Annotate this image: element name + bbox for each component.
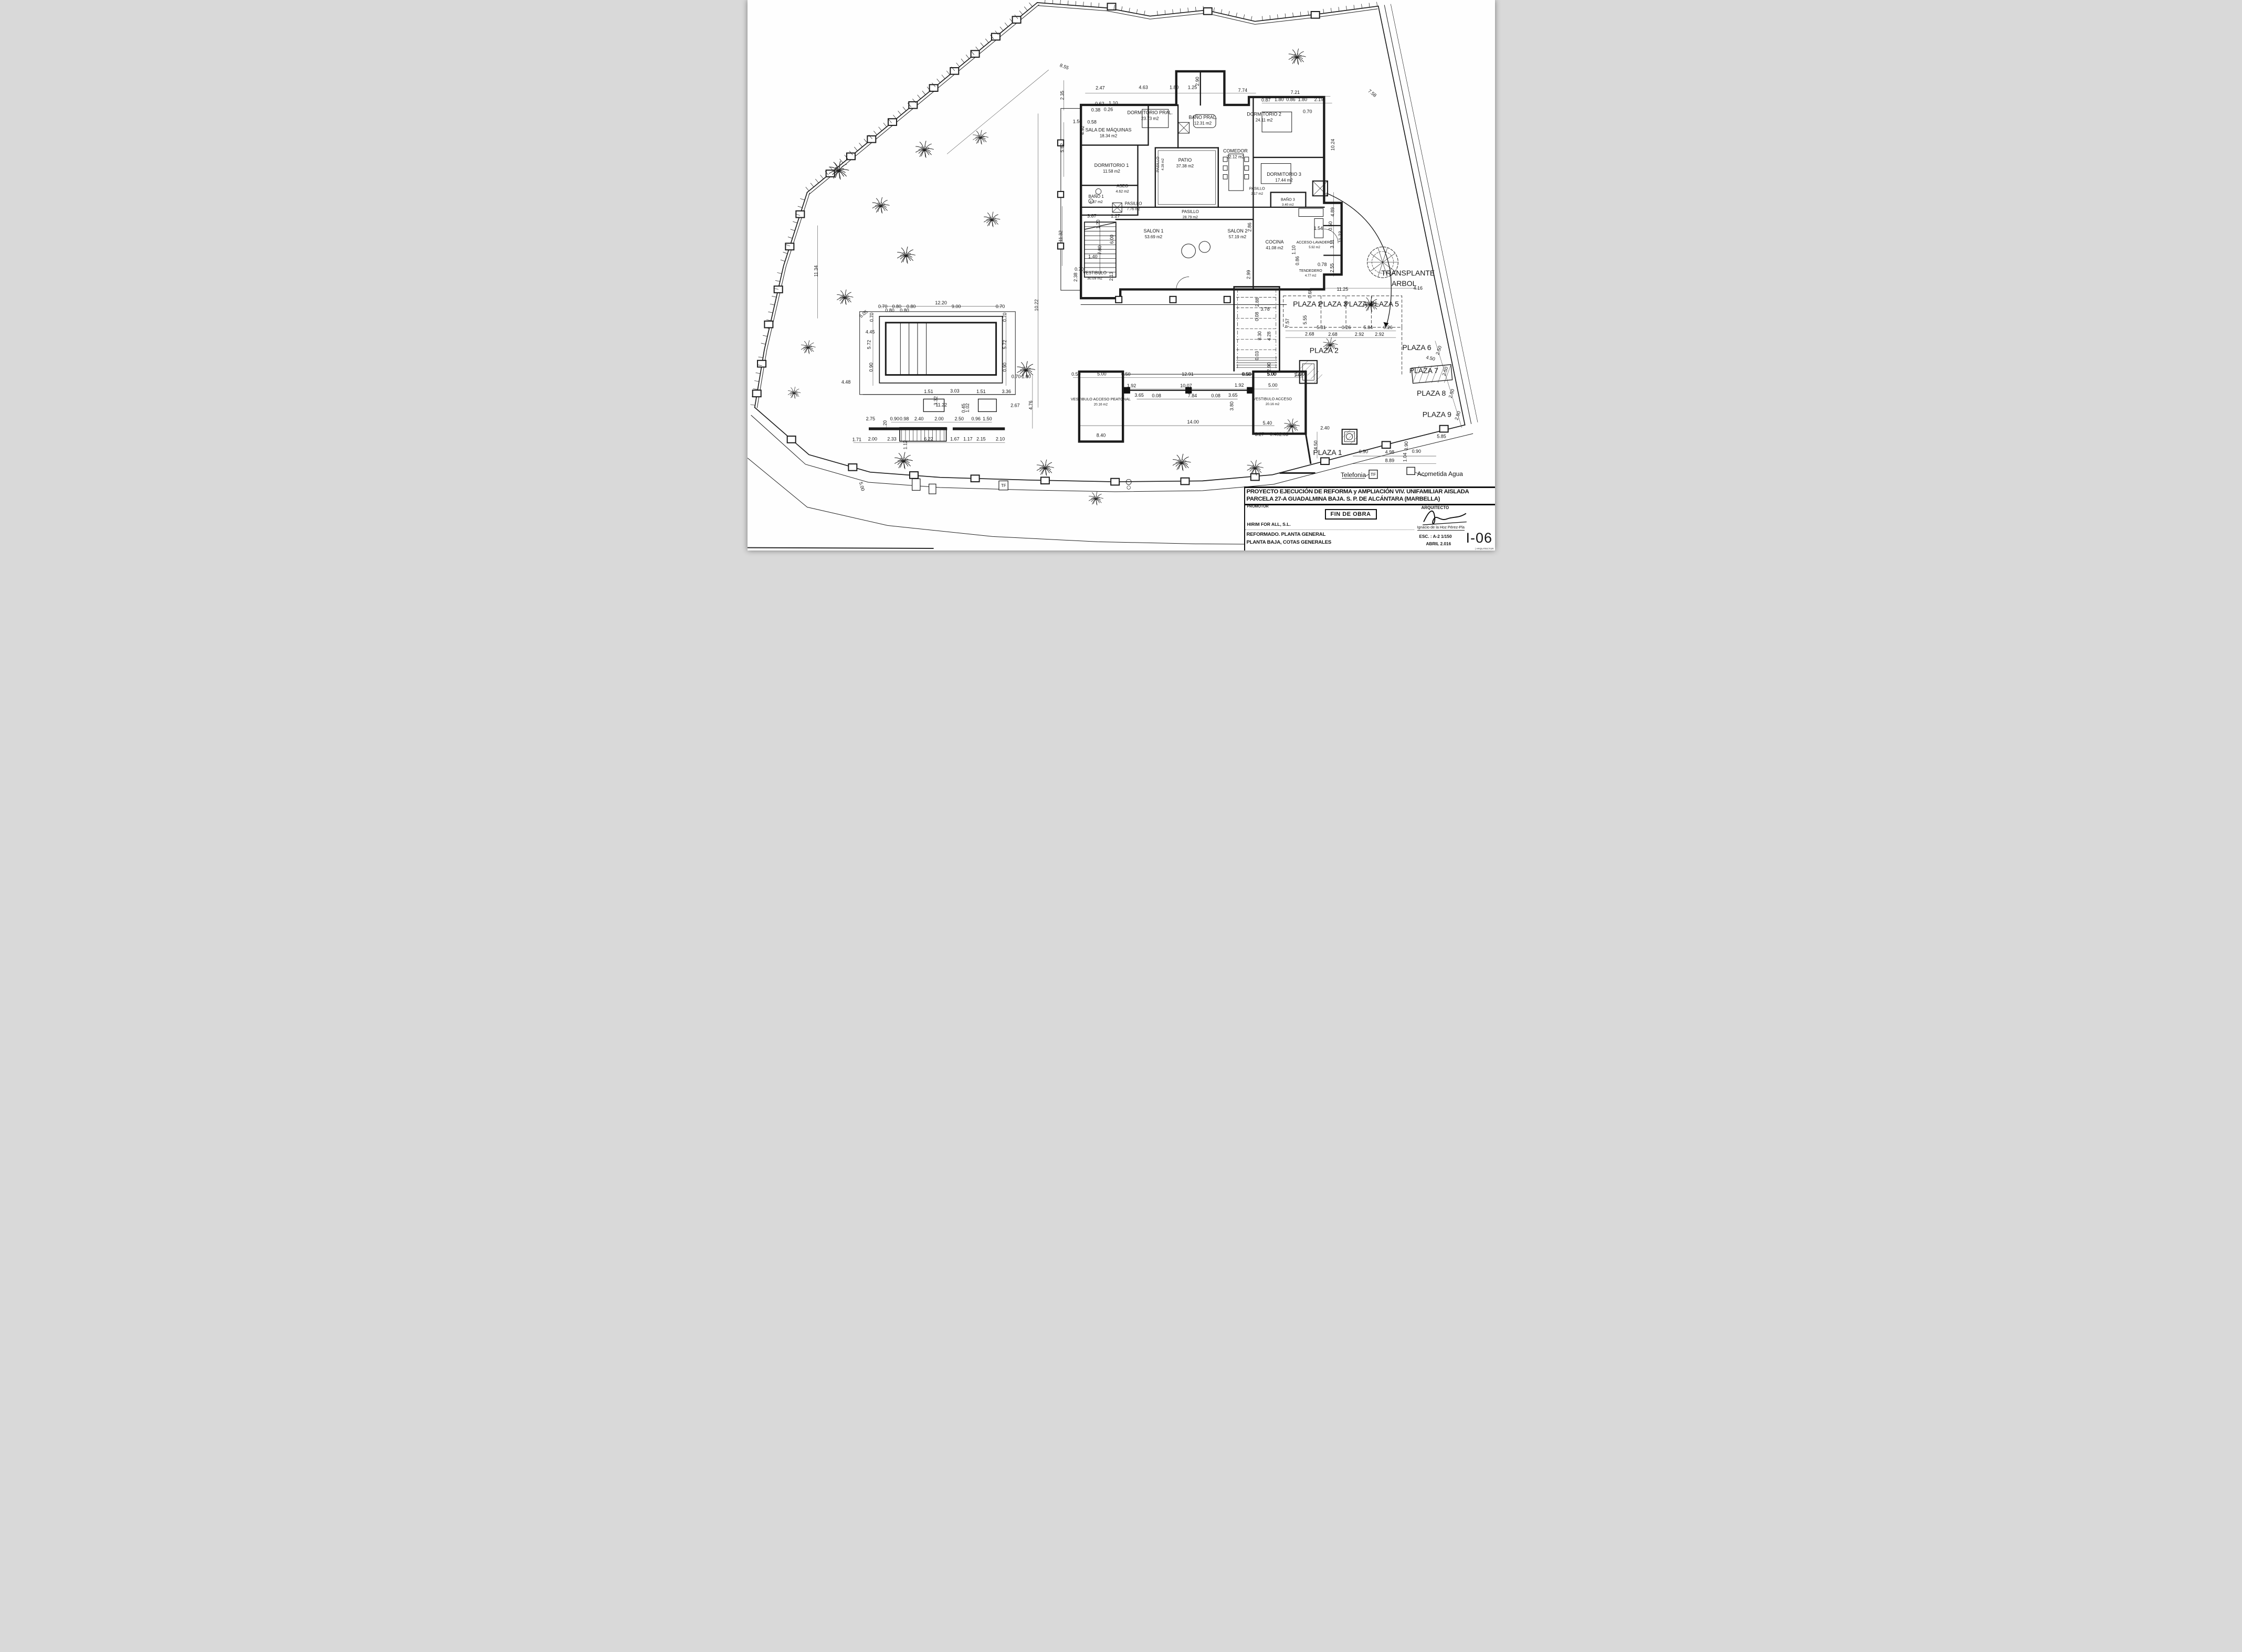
wall-hatch (1005, 23, 1008, 27)
dimension-text: 8.89 (1385, 458, 1394, 463)
dimension-text: 7.74 (1238, 88, 1247, 93)
room-area: 28.79 m2 (1182, 216, 1197, 219)
palm-tree (894, 452, 912, 469)
planter-hatch (1304, 364, 1312, 372)
dimension-text: 0.90 (1412, 449, 1421, 454)
dimension-text: 1.50 (1072, 119, 1081, 124)
dimension-text: 5.72 (866, 340, 871, 350)
wall-hatch (966, 55, 969, 59)
wall-hatch (750, 405, 755, 405)
palm-tree (1037, 460, 1054, 475)
wall-hatch (859, 143, 862, 147)
dimension-text: 0.68 (1307, 289, 1312, 299)
dimension-text: 5.00 (858, 481, 865, 491)
palm-tree (1089, 492, 1103, 505)
room-label: SALON 1 (1143, 228, 1163, 234)
dimension-text: 9.00 (951, 304, 961, 309)
dimension-text: 2.75 (866, 416, 875, 421)
site-label: PLAZA 6 (1402, 343, 1431, 352)
dimension-text: 4.76 (1028, 400, 1033, 409)
wall-hatch (1300, 12, 1301, 16)
dimension-text: 4.50 (1313, 440, 1318, 449)
dimension-text: 5.00 (1097, 371, 1107, 376)
wall-hatch (1376, 2, 1377, 6)
wall-hatch (1129, 8, 1129, 12)
dimension-text: 0.90 (1359, 449, 1368, 454)
wall-hatch (783, 252, 787, 254)
wall-hatch (777, 273, 781, 274)
dimension-text: 2.50 (1441, 366, 1449, 377)
dimension-text: 0.96 (971, 416, 981, 421)
dimension-text: 0.70 (995, 304, 1005, 309)
wall-hatch (1251, 16, 1252, 20)
dimension-text: 2.68 (1304, 331, 1314, 336)
palm-tree (872, 197, 889, 213)
dimension-text: 12.20 (935, 300, 946, 305)
wall-hatch (1075, 2, 1076, 6)
site-label: Acometida Agua (1417, 470, 1463, 478)
promotor-name: HIRIM FOR ALL, S.L. (1247, 522, 1291, 527)
dimension-text: 1.17 (963, 437, 973, 442)
dimension-text: 10.24 (1330, 139, 1335, 151)
dimension-text: 0.98 (899, 416, 909, 421)
wall-hatch (798, 206, 802, 208)
dimension-text: 2.03 (1279, 432, 1288, 437)
road-outer-edge (748, 458, 1245, 544)
fence-post (1040, 477, 1049, 484)
kitchen-counter (1299, 208, 1323, 216)
room-label: COMEDOR (1223, 149, 1247, 154)
room-label: ACCESO-LAVADERO (1296, 241, 1332, 245)
wall-hatch (1000, 27, 1003, 30)
arquitecto-name: Ignacio de la Hoz Pérez-Pla (1417, 525, 1465, 531)
right-boundary (1378, 6, 1465, 425)
wall-hatch (903, 107, 906, 111)
dimension-text: 2.50 (1454, 410, 1461, 421)
fence-post (1321, 458, 1329, 464)
room-label: SALA DE MÁQUINAS (1085, 128, 1131, 133)
dimension-text: 2.33 (887, 437, 897, 442)
dimension-text: 0.38 (1091, 107, 1100, 112)
dimension-text: 1.80 (1298, 97, 1307, 102)
dimension-text: 7.80 (1097, 246, 1102, 255)
fence-post (757, 361, 766, 367)
palm-tree (1289, 49, 1306, 65)
dimension-text: 2.00 (868, 437, 877, 442)
dimension-text: 5.31 (1317, 325, 1325, 330)
dimension-text: 1.60 (1293, 372, 1303, 377)
dimension-text: 0.26 (1383, 325, 1393, 330)
palm-tree (915, 141, 933, 158)
dimension-text: 2.50 (1447, 388, 1455, 399)
wall-hatch (1213, 8, 1214, 12)
dimension-text: 8.30 (1257, 331, 1262, 341)
wall-hatch (1269, 15, 1270, 19)
room-area: 3.40 m2 (1281, 203, 1293, 207)
fence-post (764, 321, 773, 328)
dimension-text: 5.85 (1437, 433, 1446, 439)
room-area: 4.77 m2 (1304, 274, 1316, 278)
wall-hatch (788, 237, 792, 238)
dimension-text: 0.78 (1317, 262, 1326, 267)
room-label: PASILLO (1155, 156, 1160, 172)
room-area: 4.28 m2 (1161, 158, 1165, 170)
dimension-text: 3.65 (1228, 393, 1238, 398)
wall-hatch (763, 335, 767, 336)
project-title-line1: PROYECTO EJECUCIÓN DE REFORMA y AMPLIACI… (1247, 489, 1493, 496)
wall-hatch (1338, 7, 1339, 12)
dimension-text: 2.35 (1059, 91, 1065, 100)
site-label: PLAZA 9 (1422, 410, 1451, 418)
dimension-text: 4.28 (1266, 332, 1271, 341)
sheet-edge-line (748, 548, 933, 548)
dimension-text: 2.40 (1320, 426, 1330, 431)
dimension-text: 0.80 (900, 308, 909, 313)
dimension-text: 2.10 (995, 437, 1005, 442)
wall-hatch (811, 183, 814, 187)
wall-hatch (800, 198, 804, 200)
dimension-text: 4.50 (1425, 355, 1435, 362)
fence-post (971, 50, 979, 57)
fence-post (991, 34, 999, 40)
dimension-text: 0.50 (1328, 221, 1333, 230)
room-label: COCINA (1265, 239, 1283, 245)
fence-post (971, 475, 979, 482)
palm-tree (1284, 419, 1299, 433)
dimension-text: 11.32 (1058, 230, 1063, 242)
dimension-text: 1.20 (882, 420, 887, 429)
dimension-text: 4.63 (1139, 84, 1148, 90)
room-area: 7.76 m2 (1127, 208, 1140, 211)
dimension-text: 7.57 (1285, 319, 1290, 327)
dimension-text: 4.45 (865, 329, 875, 334)
site-label: PLAZA 5 (1370, 300, 1398, 308)
fence-post (1311, 12, 1319, 18)
room-label: VESTIBULO ACCESO PEATONAL (1070, 397, 1130, 401)
wall-hatch (790, 229, 794, 231)
wall-hatch (1121, 7, 1122, 11)
dimension-text: 12.91 (1182, 372, 1193, 377)
wall-hatch (1228, 11, 1229, 15)
palm-tree (837, 290, 852, 304)
palm-tree (1173, 454, 1191, 471)
fence-post (1250, 474, 1259, 481)
dimension-text: 1.80 (1170, 84, 1179, 90)
wall-hatch (961, 59, 964, 62)
dimension-text: 11.34 (813, 266, 818, 277)
room-label: ASEO (1117, 184, 1128, 188)
dimension-text: 0.90 (1403, 441, 1408, 451)
drawing-title-line1: REFORMADO. PLANTA GENERAL (1247, 532, 1326, 537)
dimension-text: 1.02 (964, 403, 970, 412)
dimension-text: 0.03 (1254, 351, 1259, 360)
dimension-text: 11.25 (1336, 287, 1348, 292)
wall-hatch (864, 139, 867, 143)
dimension-text: 1.10 (1109, 101, 1118, 106)
fence-post (909, 472, 918, 479)
wall-hatch (1236, 13, 1237, 17)
dimension-text: 2.67 (1011, 403, 1020, 408)
dimension-text: 1.04 (1402, 453, 1407, 462)
room-label: PASILLO (1182, 209, 1199, 214)
room-area: 53.69 m2 (1144, 235, 1162, 239)
dimension-text: 0.26 (1103, 107, 1113, 112)
wall-hatch (1243, 15, 1244, 19)
wall-hatch (1024, 7, 1027, 10)
room-area: 11.58 m2 (1103, 169, 1120, 174)
room-label: PASILLO (1249, 186, 1265, 191)
room-area: 20.16 m2 (1265, 403, 1279, 406)
dimension-text: 1.67 (950, 437, 960, 442)
fence-post (846, 153, 855, 160)
dimension-text: 2.00 (934, 416, 944, 421)
dimension-text: 2.68 (1328, 332, 1338, 337)
wall-hatch (1180, 9, 1181, 13)
wall-hatch (781, 260, 785, 261)
dimension-text: 1.51 (924, 389, 933, 394)
room-area: 24.11 m2 (1255, 118, 1272, 123)
fence-post (950, 68, 959, 75)
site-label: PLAZA 3 (1318, 300, 1347, 308)
wall-hatch (770, 304, 774, 305)
dimension-text: 0.58 (1087, 120, 1097, 125)
wall-hatch (878, 127, 881, 131)
room-area: 5.92 m2 (1309, 246, 1320, 249)
fence-post (888, 119, 896, 125)
project-title-line2: PARCELA 27-A GUADALMINA BAJA. S. P. DE A… (1247, 496, 1493, 503)
wall-hatch (758, 357, 763, 357)
dimension-text: 0.90 (868, 363, 873, 372)
wall-hatch (946, 71, 950, 75)
dimension-text: 2.55 (1329, 263, 1334, 273)
dimension-text: 3.11 (1329, 239, 1334, 248)
room-label: TENDEDERO (1299, 269, 1322, 273)
site-label: Telefonia (1341, 471, 1366, 479)
palm-tree (1247, 460, 1263, 475)
dimension-text: 2.47 (1096, 86, 1105, 91)
dimension-text: 4.92 (1079, 126, 1085, 135)
room-area: 57.19 m2 (1228, 235, 1246, 239)
wall-hatch (1172, 9, 1173, 14)
wall-hatch (766, 320, 771, 321)
dimension-text: 3.80 (1229, 401, 1234, 410)
dimension-text: 6.22 (924, 437, 933, 442)
dimension-text: 0.86 (1294, 256, 1300, 265)
dimension-text: 1.20 (1096, 219, 1101, 229)
dimension-text: 1.71 (852, 437, 861, 442)
wall-hatch (815, 179, 818, 183)
dimension-text: 5.00 (1268, 383, 1277, 388)
dimension-text: 2.92 (1375, 332, 1384, 337)
wall-hatch (775, 280, 780, 281)
dimension-text: 8.40 (1096, 433, 1106, 438)
wall-hatch (1195, 7, 1196, 11)
fence-post (752, 390, 761, 397)
room-label: DORMITORIO 1 (1094, 163, 1129, 168)
wall-hatch (917, 95, 920, 99)
dimension-text: 5.40 (1262, 420, 1272, 426)
dimension-text: 2.92 (1354, 332, 1364, 337)
palm-tree (788, 387, 801, 398)
dimension-text: 6.00 (1109, 235, 1114, 243)
dimension-text: 2.88 (1255, 298, 1260, 307)
fence-post (1181, 478, 1189, 485)
wall-hatch (1323, 9, 1323, 13)
dimension-text: 5.55 (1302, 315, 1308, 324)
dimension-text: 0.70 (1302, 109, 1312, 114)
wall-hatch (883, 123, 887, 126)
dimension-text: 7.84 (1187, 393, 1197, 398)
dimension-text: 11.22 (935, 402, 947, 407)
room-area: 41.08 m2 (1266, 246, 1283, 250)
scale-text: ESC. : A-2 1/150 (1419, 534, 1452, 539)
room-label: BAÑO PRAL. (1188, 115, 1217, 120)
title-block: PROYECTO EJECUCIÓN DE REFORMA y AMPLIACI… (1244, 486, 1495, 550)
wall-hatch (761, 343, 765, 344)
water-box (1406, 467, 1414, 474)
wall-hatch (854, 147, 857, 151)
wall-hatch (1361, 4, 1362, 8)
dimension-text: 8.55 (1059, 62, 1069, 70)
drawing-sheet: SALA DE MÁQUINAS18.34 m2DORMITORIO PRAL.… (748, 0, 1495, 550)
room-label: BAÑO 3 (1280, 197, 1294, 202)
dimension-text: 4.89 (1330, 207, 1335, 216)
dimension-text: 3.27 (1255, 432, 1264, 437)
room-label: DORMITORIO 3 (1267, 172, 1301, 177)
wall-hatch (1029, 3, 1032, 6)
wall-hatch (898, 111, 901, 115)
dimension-text: 5.84 (1363, 325, 1373, 330)
dimension-text: 0.70 (869, 313, 874, 322)
wall-hatch (942, 75, 945, 79)
wall-hatch (1285, 14, 1286, 18)
wall-hatch (1068, 1, 1068, 5)
date-text: ABRIL 2.016 (1426, 542, 1451, 546)
palm-tree (984, 212, 999, 227)
room-label: PATIO (1178, 157, 1192, 163)
dimension-text: 0.40 (1269, 432, 1279, 437)
site-plan-drawing: SALA DE MÁQUINAS18.34 m2DORMITORIO PRAL.… (748, 0, 1495, 550)
site-label: TF (1001, 483, 1006, 488)
dimension-text: 1.40 (1088, 254, 1098, 259)
wall-hatch (956, 63, 959, 67)
wall-hatch (1331, 8, 1331, 13)
dimension-text: 7.21 (1290, 90, 1300, 95)
dimension-text: 0.50 (1071, 372, 1081, 377)
fence-post (1439, 426, 1448, 432)
wall-hatch (1221, 9, 1222, 14)
wall-hatch (1019, 11, 1023, 15)
sofa (1181, 244, 1195, 258)
site-label: PLAZA 4 (1344, 300, 1373, 308)
wall-hatch (1262, 16, 1262, 20)
wall-hatch (1346, 6, 1346, 10)
fence-post (848, 464, 857, 471)
dimension-text: 2.90 (1195, 77, 1200, 86)
dimension-text: 2.99 (1246, 270, 1251, 279)
wall-hatch (1187, 8, 1188, 12)
dimension-text: 0.70 (1011, 374, 1020, 379)
dimension-text: 2.19 (1314, 97, 1323, 102)
dining-table (1228, 154, 1243, 190)
wall-hatch (936, 79, 940, 82)
toilet (1096, 189, 1101, 195)
dimension-text: 0.08 (1211, 393, 1220, 398)
wall-hatch (1060, 0, 1060, 4)
fin-de-obra-stamp: FIN DE OBRA (1325, 509, 1377, 520)
dimension-text: 1.12 (902, 440, 908, 449)
wall-hatch (922, 91, 925, 94)
dimension-text: 0.86 (1286, 97, 1296, 102)
sheet-number: I-06 (1466, 530, 1493, 546)
architect-signature (1418, 507, 1471, 527)
dimension-text: 3.36 (1002, 389, 1011, 394)
palm-tree (973, 130, 988, 144)
dimension-text: 0.26 (1341, 325, 1351, 330)
room-label: PASILLO (1124, 202, 1142, 206)
dimension-text: 2.50 (954, 416, 964, 421)
fence-post (1203, 8, 1212, 15)
dimension-text: 4.98 (1385, 449, 1394, 454)
project-title: PROYECTO EJECUCIÓN DE REFORMA y AMPLIACI… (1245, 488, 1495, 505)
dimension-text: 1.50 (983, 416, 992, 421)
room-area: 2.17 m2 (1251, 192, 1263, 196)
dimension-text: 1.54 (1313, 226, 1323, 231)
site-label: PLAZA 2 (1293, 300, 1322, 308)
dimension-text: 10.07 (1180, 383, 1192, 388)
site-label: PLAZA 8 (1417, 389, 1446, 397)
wall-hatch (873, 131, 877, 135)
dimension-text: 0.08 (1254, 312, 1259, 321)
promotor-label: PROMOTOR (1247, 505, 1269, 509)
site-label: TF (1370, 472, 1376, 477)
corner-text: | ARQUITECTUR (1475, 547, 1493, 550)
dimension-text: 0.50 (1121, 372, 1131, 377)
fence-post (787, 436, 795, 443)
dimension-text: 3.65 (1134, 393, 1144, 398)
dimension-text: 1.10 (1291, 245, 1296, 254)
dimension-text: 5.72 (1002, 340, 1007, 350)
room-label: SALON 2 (1227, 228, 1247, 234)
wall-hatch (768, 312, 772, 313)
site-label: TRANSPLANTE (1381, 269, 1435, 277)
room-label: VESTIBULO ACCESO (1253, 396, 1292, 401)
room-label: DORMITORIO 2 (1247, 112, 1281, 117)
planters (1299, 181, 1356, 444)
dimension-text: 0.70 (1002, 313, 1007, 322)
wall-hatch (1157, 11, 1157, 15)
site-label: PLAZA 2 (1309, 346, 1338, 354)
dimension-text: 3.87 (1087, 214, 1097, 219)
dimension-text: 14.00 (1187, 419, 1198, 425)
dimension-text: 0.50 (1241, 372, 1251, 377)
room-area: 4.62 m2 (1115, 190, 1129, 194)
drawing-title-line2: PLANTA BAJA, COTAS GENERALES (1247, 539, 1332, 545)
planter-hatch (1314, 375, 1322, 383)
dimension-text: 3.78 (1260, 306, 1270, 312)
wall-hatch (753, 389, 757, 389)
site-label: PLAZA 7 (1409, 366, 1438, 375)
room-label: BAÑO 1 (1088, 194, 1104, 199)
wall-hatch (793, 221, 797, 223)
dimension-text: 3.03 (950, 388, 960, 394)
dimension-text: 1.00 (1022, 374, 1031, 379)
fence-post (1382, 441, 1390, 448)
room-area: 23.73 m2 (1141, 116, 1159, 121)
dimension-text: 4.16 (1413, 285, 1423, 291)
planter-hatch (1300, 361, 1308, 368)
wall-hatch (1091, 3, 1091, 7)
